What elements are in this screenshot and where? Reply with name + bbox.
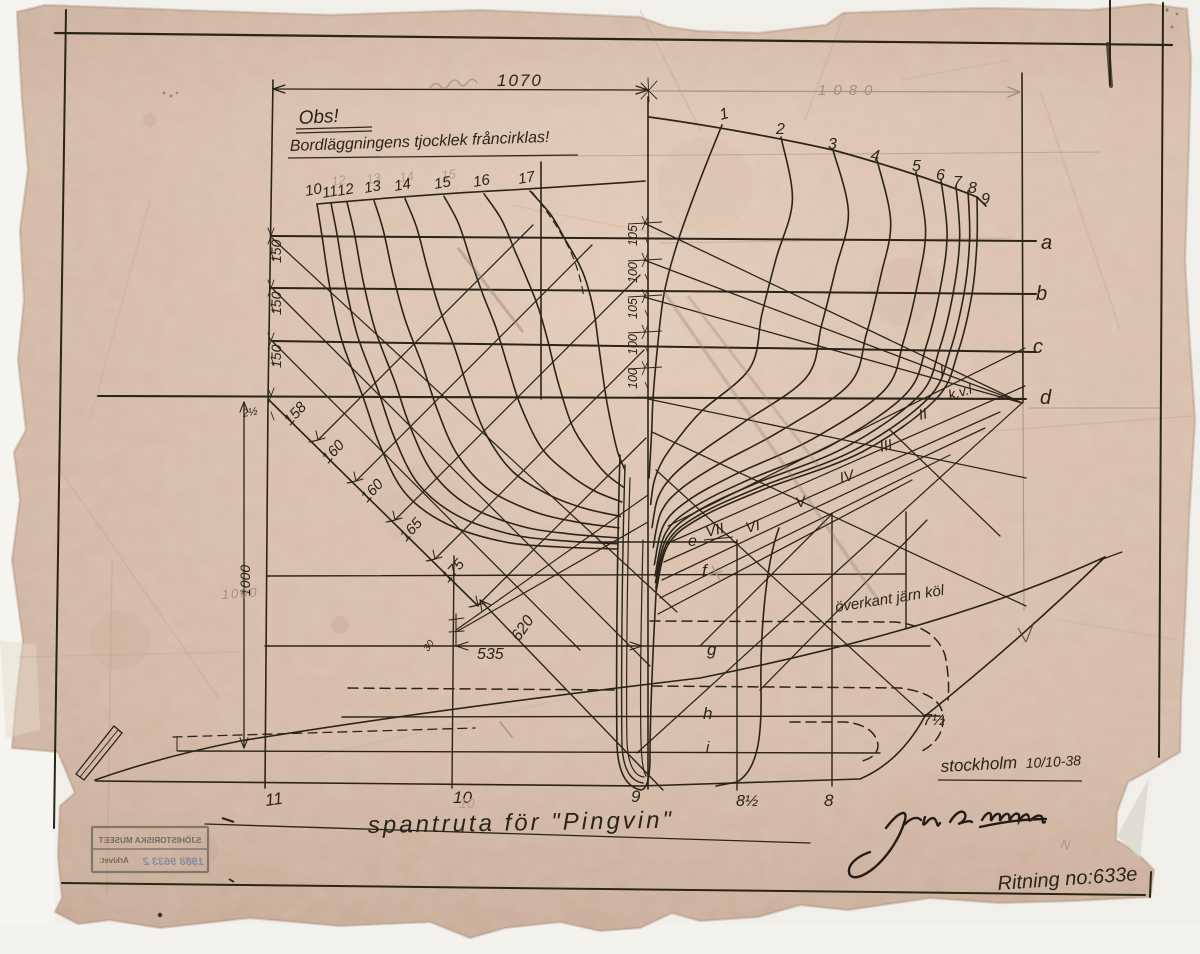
svg-text:1070: 1070 (497, 71, 543, 90)
svg-text:6: 6 (936, 167, 945, 184)
svg-text:150: 150 (268, 291, 284, 315)
svg-text:e: e (688, 533, 697, 550)
svg-text:1988 9633 2: 1988 9633 2 (143, 856, 204, 868)
svg-text:10/10-38: 10/10-38 (1025, 752, 1081, 771)
svg-text:2: 2 (775, 121, 785, 138)
svg-text:5: 5 (912, 158, 921, 175)
svg-text:9: 9 (981, 191, 990, 208)
svg-text:105: 105 (626, 298, 640, 319)
svg-text:100: 100 (626, 334, 640, 355)
svg-text:1000: 1000 (221, 584, 259, 602)
svg-text:a: a (1041, 232, 1052, 254)
svg-text:10: 10 (459, 795, 475, 811)
svg-text:b: b (1036, 283, 1047, 305)
svg-text:Obs!: Obs! (298, 106, 340, 129)
svg-text:14: 14 (393, 175, 412, 195)
svg-text:1080: 1080 (818, 82, 879, 99)
svg-text:Arkivet:: Arkivet: (99, 856, 129, 865)
svg-text:h: h (703, 704, 712, 723)
svg-text:d: d (1040, 387, 1052, 409)
svg-text:7: 7 (953, 174, 963, 191)
svg-text:150: 150 (268, 239, 284, 263)
svg-text:7½: 7½ (923, 712, 945, 729)
svg-text:100: 100 (626, 368, 640, 389)
svg-text:stockholm: stockholm (940, 753, 1017, 776)
svg-text:g: g (707, 640, 717, 659)
svg-text:9: 9 (631, 787, 641, 806)
svg-text:8: 8 (968, 180, 977, 197)
svg-text:11: 11 (264, 789, 284, 810)
svg-text:8: 8 (824, 791, 834, 810)
svg-text:3: 3 (828, 136, 837, 153)
svg-text:spantruta för "Pingvin": spantruta för "Pingvin" (368, 807, 675, 839)
svg-text:105: 105 (626, 225, 640, 246)
svg-text:100: 100 (626, 262, 640, 283)
svg-text:150: 150 (268, 344, 284, 368)
svg-text:535: 535 (477, 646, 504, 663)
svg-text:8½: 8½ (736, 793, 758, 810)
svg-text:SJÖHISTORISKA MUSEET: SJÖHISTORISKA MUSEET (99, 835, 202, 845)
svg-text:c: c (1033, 336, 1043, 358)
